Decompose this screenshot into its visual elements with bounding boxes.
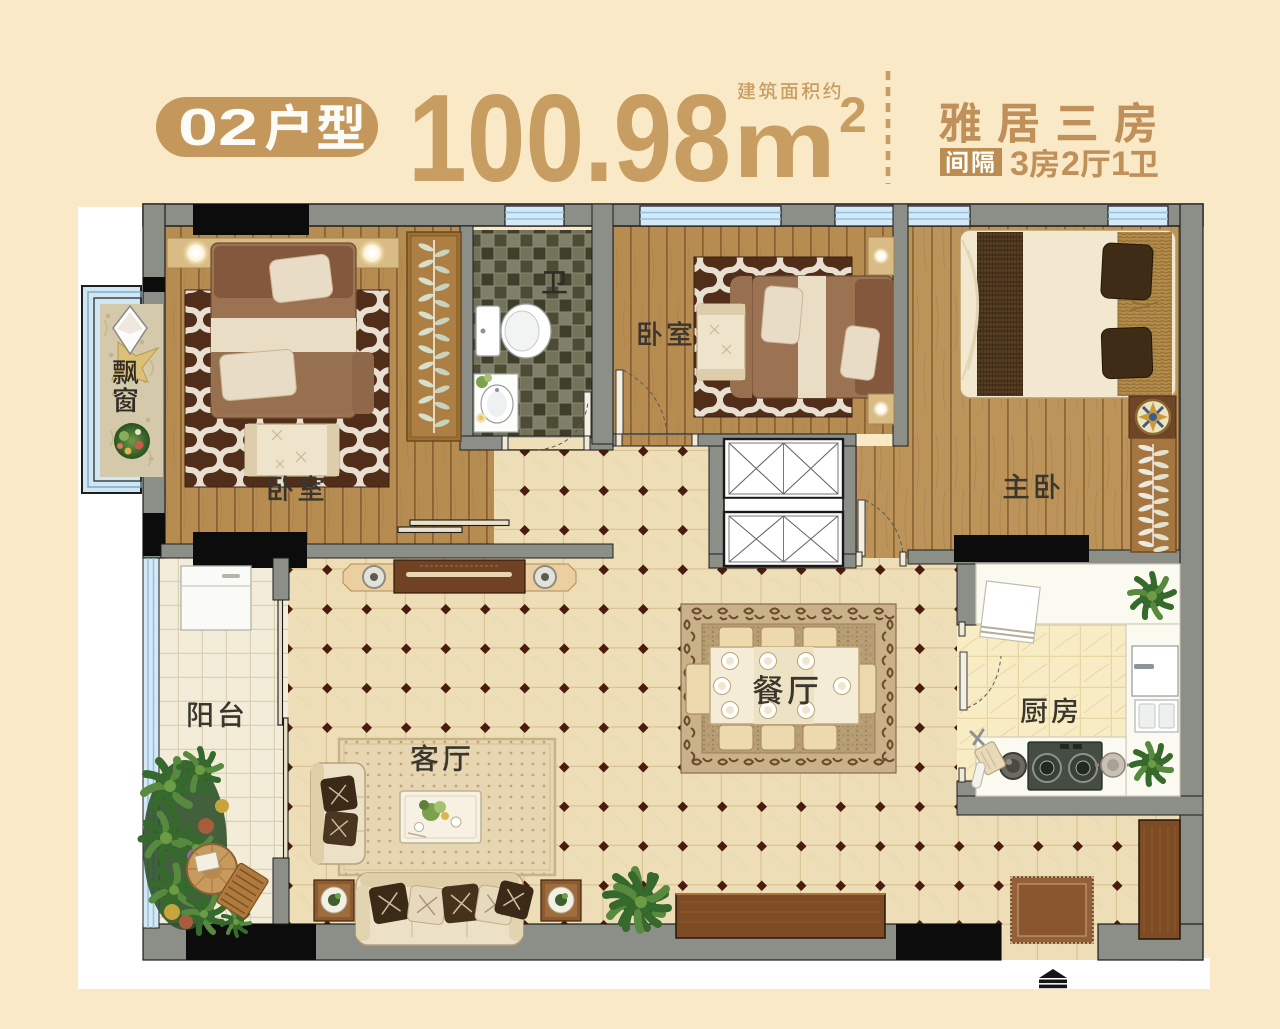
- svg-text:02: 02: [178, 99, 258, 157]
- svg-text:2: 2: [839, 87, 867, 143]
- svg-text:m: m: [733, 91, 836, 198]
- svg-text:2: 2: [1061, 145, 1080, 183]
- svg-text:3: 3: [1010, 145, 1029, 183]
- svg-text:1: 1: [1111, 145, 1130, 183]
- svg-text:100.98: 100.98: [408, 70, 731, 208]
